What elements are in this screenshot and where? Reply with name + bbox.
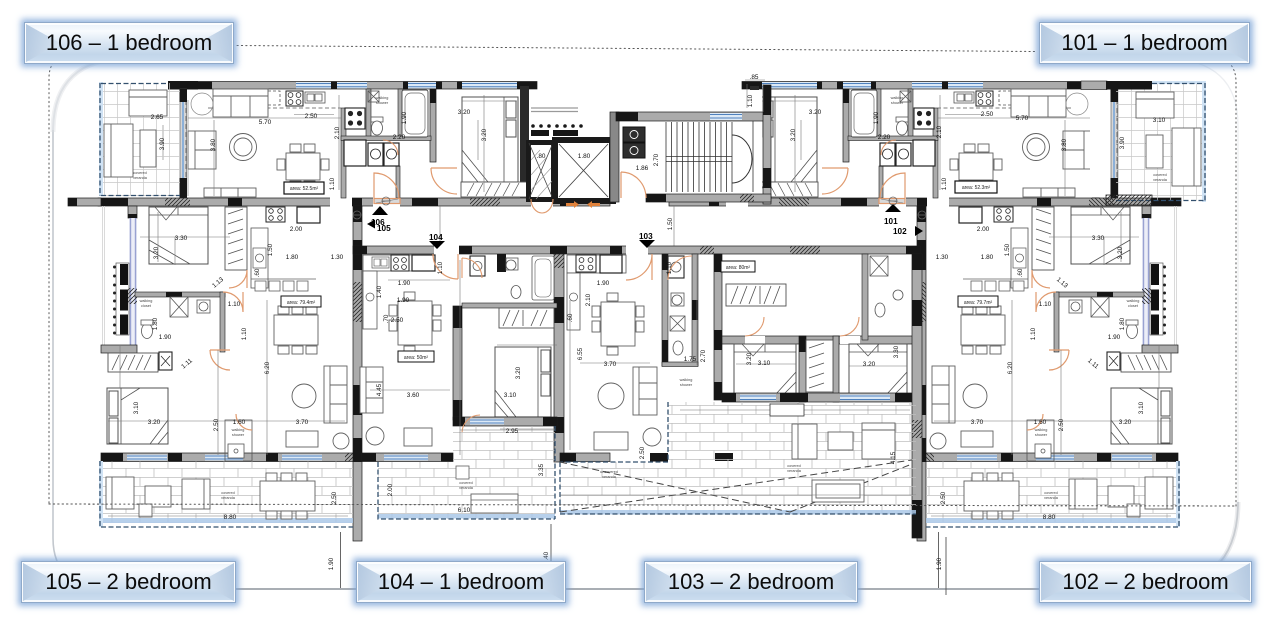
svg-text:102: 102 <box>893 227 907 236</box>
svg-text:3.90: 3.90 <box>1119 136 1126 149</box>
svg-text:2.20: 2.20 <box>878 134 891 141</box>
svg-text:area: 80m²: area: 80m² <box>726 265 751 271</box>
svg-text:4.15: 4.15 <box>890 451 897 464</box>
svg-text:1.10: 1.10 <box>437 261 444 274</box>
svg-text:1.10: 1.10 <box>941 177 948 190</box>
svg-text:covered: covered <box>221 491 235 495</box>
svg-text:walking: walking <box>1127 299 1140 303</box>
svg-text:3.70: 3.70 <box>604 361 617 368</box>
svg-text:3.80: 3.80 <box>210 138 217 151</box>
svg-text:3.20: 3.20 <box>481 128 488 141</box>
svg-text:.60: .60 <box>567 313 574 322</box>
svg-text:area: 79.7m²: area: 79.7m² <box>964 300 993 306</box>
svg-text:3.20: 3.20 <box>809 109 822 116</box>
svg-text:4.45: 4.45 <box>376 383 383 396</box>
svg-text:6.55: 6.55 <box>577 347 584 360</box>
svg-text:6.20: 6.20 <box>264 361 271 374</box>
svg-text:1.86: 1.86 <box>636 165 649 172</box>
svg-text:3.20: 3.20 <box>746 352 753 365</box>
svg-text:.80: .80 <box>537 153 546 160</box>
svg-text:3.35: 3.35 <box>538 463 545 476</box>
svg-text:1.50: 1.50 <box>1004 243 1011 256</box>
svg-text:1.90: 1.90 <box>1108 334 1121 341</box>
svg-text:2.50: 2.50 <box>940 491 947 504</box>
svg-text:area: 50m²: area: 50m² <box>404 355 429 361</box>
svg-text:3.20: 3.20 <box>1119 419 1132 426</box>
svg-text:1.80: 1.80 <box>1119 317 1126 330</box>
svg-text:covered: covered <box>459 481 473 485</box>
svg-text:1.10: 1.10 <box>1030 327 1037 340</box>
svg-text:shower: shower <box>891 101 904 105</box>
svg-text:closet: closet <box>1128 304 1139 308</box>
svg-text:2.50: 2.50 <box>639 446 646 459</box>
svg-text:veranda: veranda <box>459 486 474 490</box>
svg-text:1.90: 1.90 <box>397 297 410 304</box>
svg-text:3.20: 3.20 <box>790 128 797 141</box>
svg-text:2.65: 2.65 <box>151 114 164 121</box>
svg-text:1.90: 1.90 <box>398 280 411 287</box>
svg-text:3.80: 3.80 <box>1061 138 1068 151</box>
svg-text:3.90: 3.90 <box>159 137 166 150</box>
svg-text:2.00: 2.00 <box>387 483 394 496</box>
svg-text:5.70: 5.70 <box>1016 115 1029 122</box>
svg-text:3.20: 3.20 <box>1117 246 1124 259</box>
svg-text:3.10: 3.10 <box>1153 117 1166 124</box>
svg-text:walking: walking <box>1035 428 1048 432</box>
svg-text:.70: .70 <box>383 314 390 323</box>
svg-text:1.30: 1.30 <box>936 254 949 261</box>
svg-text:covered: covered <box>787 464 801 468</box>
svg-text:walking: walking <box>376 96 389 100</box>
svg-text:3.30: 3.30 <box>1092 235 1105 242</box>
svg-text:covered: covered <box>1044 491 1058 495</box>
svg-text:1.10: 1.10 <box>329 177 336 190</box>
svg-text:2.50: 2.50 <box>1058 418 1065 431</box>
svg-text:uncovered: uncovered <box>600 470 618 474</box>
svg-text:2.70: 2.70 <box>653 153 660 166</box>
svg-text:2.20: 2.20 <box>393 134 406 141</box>
svg-text:area: 52.5m²: area: 52.5m² <box>290 186 319 192</box>
svg-text:3.10: 3.10 <box>504 392 517 399</box>
svg-text:3.30: 3.30 <box>893 345 900 358</box>
svg-text:1.80: 1.80 <box>578 153 591 160</box>
svg-text:6.10: 6.10 <box>458 507 471 514</box>
svg-text:8.80: 8.80 <box>1043 514 1056 521</box>
svg-text:3.10: 3.10 <box>1138 401 1145 414</box>
svg-text:3.70: 3.70 <box>296 419 309 426</box>
svg-text:2.50: 2.50 <box>981 111 994 118</box>
svg-text:1.10: 1.10 <box>241 327 248 340</box>
svg-text:1.75: 1.75 <box>684 356 697 363</box>
svg-text:veranda: veranda <box>602 475 617 479</box>
svg-text:1.10: 1.10 <box>1039 301 1052 308</box>
svg-text:1.50: 1.50 <box>267 243 274 256</box>
svg-text:.85: .85 <box>750 74 759 81</box>
svg-text:1.30: 1.30 <box>331 254 344 261</box>
svg-text:1.90: 1.90 <box>936 557 943 570</box>
svg-text:8.80: 8.80 <box>224 514 237 521</box>
svg-text:closet: closet <box>141 304 152 308</box>
svg-text:2.50: 2.50 <box>213 418 220 431</box>
svg-text:veranda: veranda <box>787 469 802 473</box>
svg-text:area: 52.3m²: area: 52.3m² <box>962 185 991 191</box>
svg-text:1.90: 1.90 <box>328 557 335 570</box>
svg-text:covered: covered <box>1153 173 1167 177</box>
svg-text:.60: .60 <box>254 268 261 277</box>
svg-text:veranda: veranda <box>221 496 236 500</box>
svg-text:1.10: 1.10 <box>747 94 754 107</box>
svg-text:1.50: 1.50 <box>667 217 674 230</box>
svg-text:1.80: 1.80 <box>981 254 994 261</box>
svg-text:1.90: 1.90 <box>597 280 610 287</box>
svg-text:2.50: 2.50 <box>331 491 338 504</box>
svg-text:shower: shower <box>232 433 245 437</box>
svg-text:3.20: 3.20 <box>153 246 160 259</box>
svg-text:2.10: 2.10 <box>334 126 341 139</box>
svg-text:1.80: 1.80 <box>152 317 159 330</box>
svg-text:2.00: 2.00 <box>290 226 303 233</box>
svg-text:covered: covered <box>133 171 147 175</box>
svg-text:103: 103 <box>639 232 653 241</box>
svg-text:3.20: 3.20 <box>863 361 876 368</box>
svg-text:2.95: 2.95 <box>506 428 519 435</box>
svg-text:shower: shower <box>376 101 389 105</box>
svg-text:area: 79.4m²: area: 79.4m² <box>287 300 316 306</box>
svg-text:3.20: 3.20 <box>515 366 522 379</box>
svg-text:veranda: veranda <box>133 176 148 180</box>
svg-text:1.90: 1.90 <box>159 334 172 341</box>
svg-text:3.30: 3.30 <box>175 235 188 242</box>
svg-text:3.60: 3.60 <box>407 392 420 399</box>
svg-text:shower: shower <box>680 383 693 387</box>
svg-text:walking: walking <box>680 378 693 382</box>
svg-text:1.60: 1.60 <box>1034 419 1047 426</box>
svg-text:5.70: 5.70 <box>259 119 272 126</box>
svg-text:veranda: veranda <box>1044 496 1059 500</box>
svg-text:veranda: veranda <box>1153 178 1168 182</box>
svg-text:1.40: 1.40 <box>376 285 383 298</box>
svg-text:2.10: 2.10 <box>936 125 943 138</box>
svg-text:2.00: 2.00 <box>977 226 990 233</box>
svg-text:walking: walking <box>891 96 904 100</box>
svg-text:1.90: 1.90 <box>873 111 880 124</box>
svg-text:3.10: 3.10 <box>133 401 140 414</box>
svg-text:6.20: 6.20 <box>1007 361 1014 374</box>
svg-text:105: 105 <box>377 224 391 233</box>
svg-text:1.10: 1.10 <box>666 261 673 274</box>
svg-text:3.20: 3.20 <box>148 419 161 426</box>
svg-text:3.20: 3.20 <box>458 109 471 116</box>
svg-text:2.50: 2.50 <box>305 113 318 120</box>
svg-text:101: 101 <box>884 217 898 226</box>
svg-text:2.10: 2.10 <box>585 293 592 306</box>
svg-text:3.70: 3.70 <box>971 419 984 426</box>
svg-text:shower: shower <box>1035 433 1048 437</box>
svg-text:2.70: 2.70 <box>700 349 707 362</box>
svg-text:1.80: 1.80 <box>286 254 299 261</box>
svg-text:1.10: 1.10 <box>228 301 241 308</box>
svg-text:104: 104 <box>429 233 443 242</box>
svg-text:.60: .60 <box>1017 268 1024 277</box>
svg-text:walking: walking <box>232 428 245 432</box>
svg-text:2.50: 2.50 <box>391 317 404 324</box>
svg-text:1.90: 1.90 <box>401 111 408 124</box>
svg-text:3.10: 3.10 <box>758 360 771 367</box>
svg-text:walking: walking <box>140 299 153 303</box>
svg-text:1.60: 1.60 <box>233 419 246 426</box>
